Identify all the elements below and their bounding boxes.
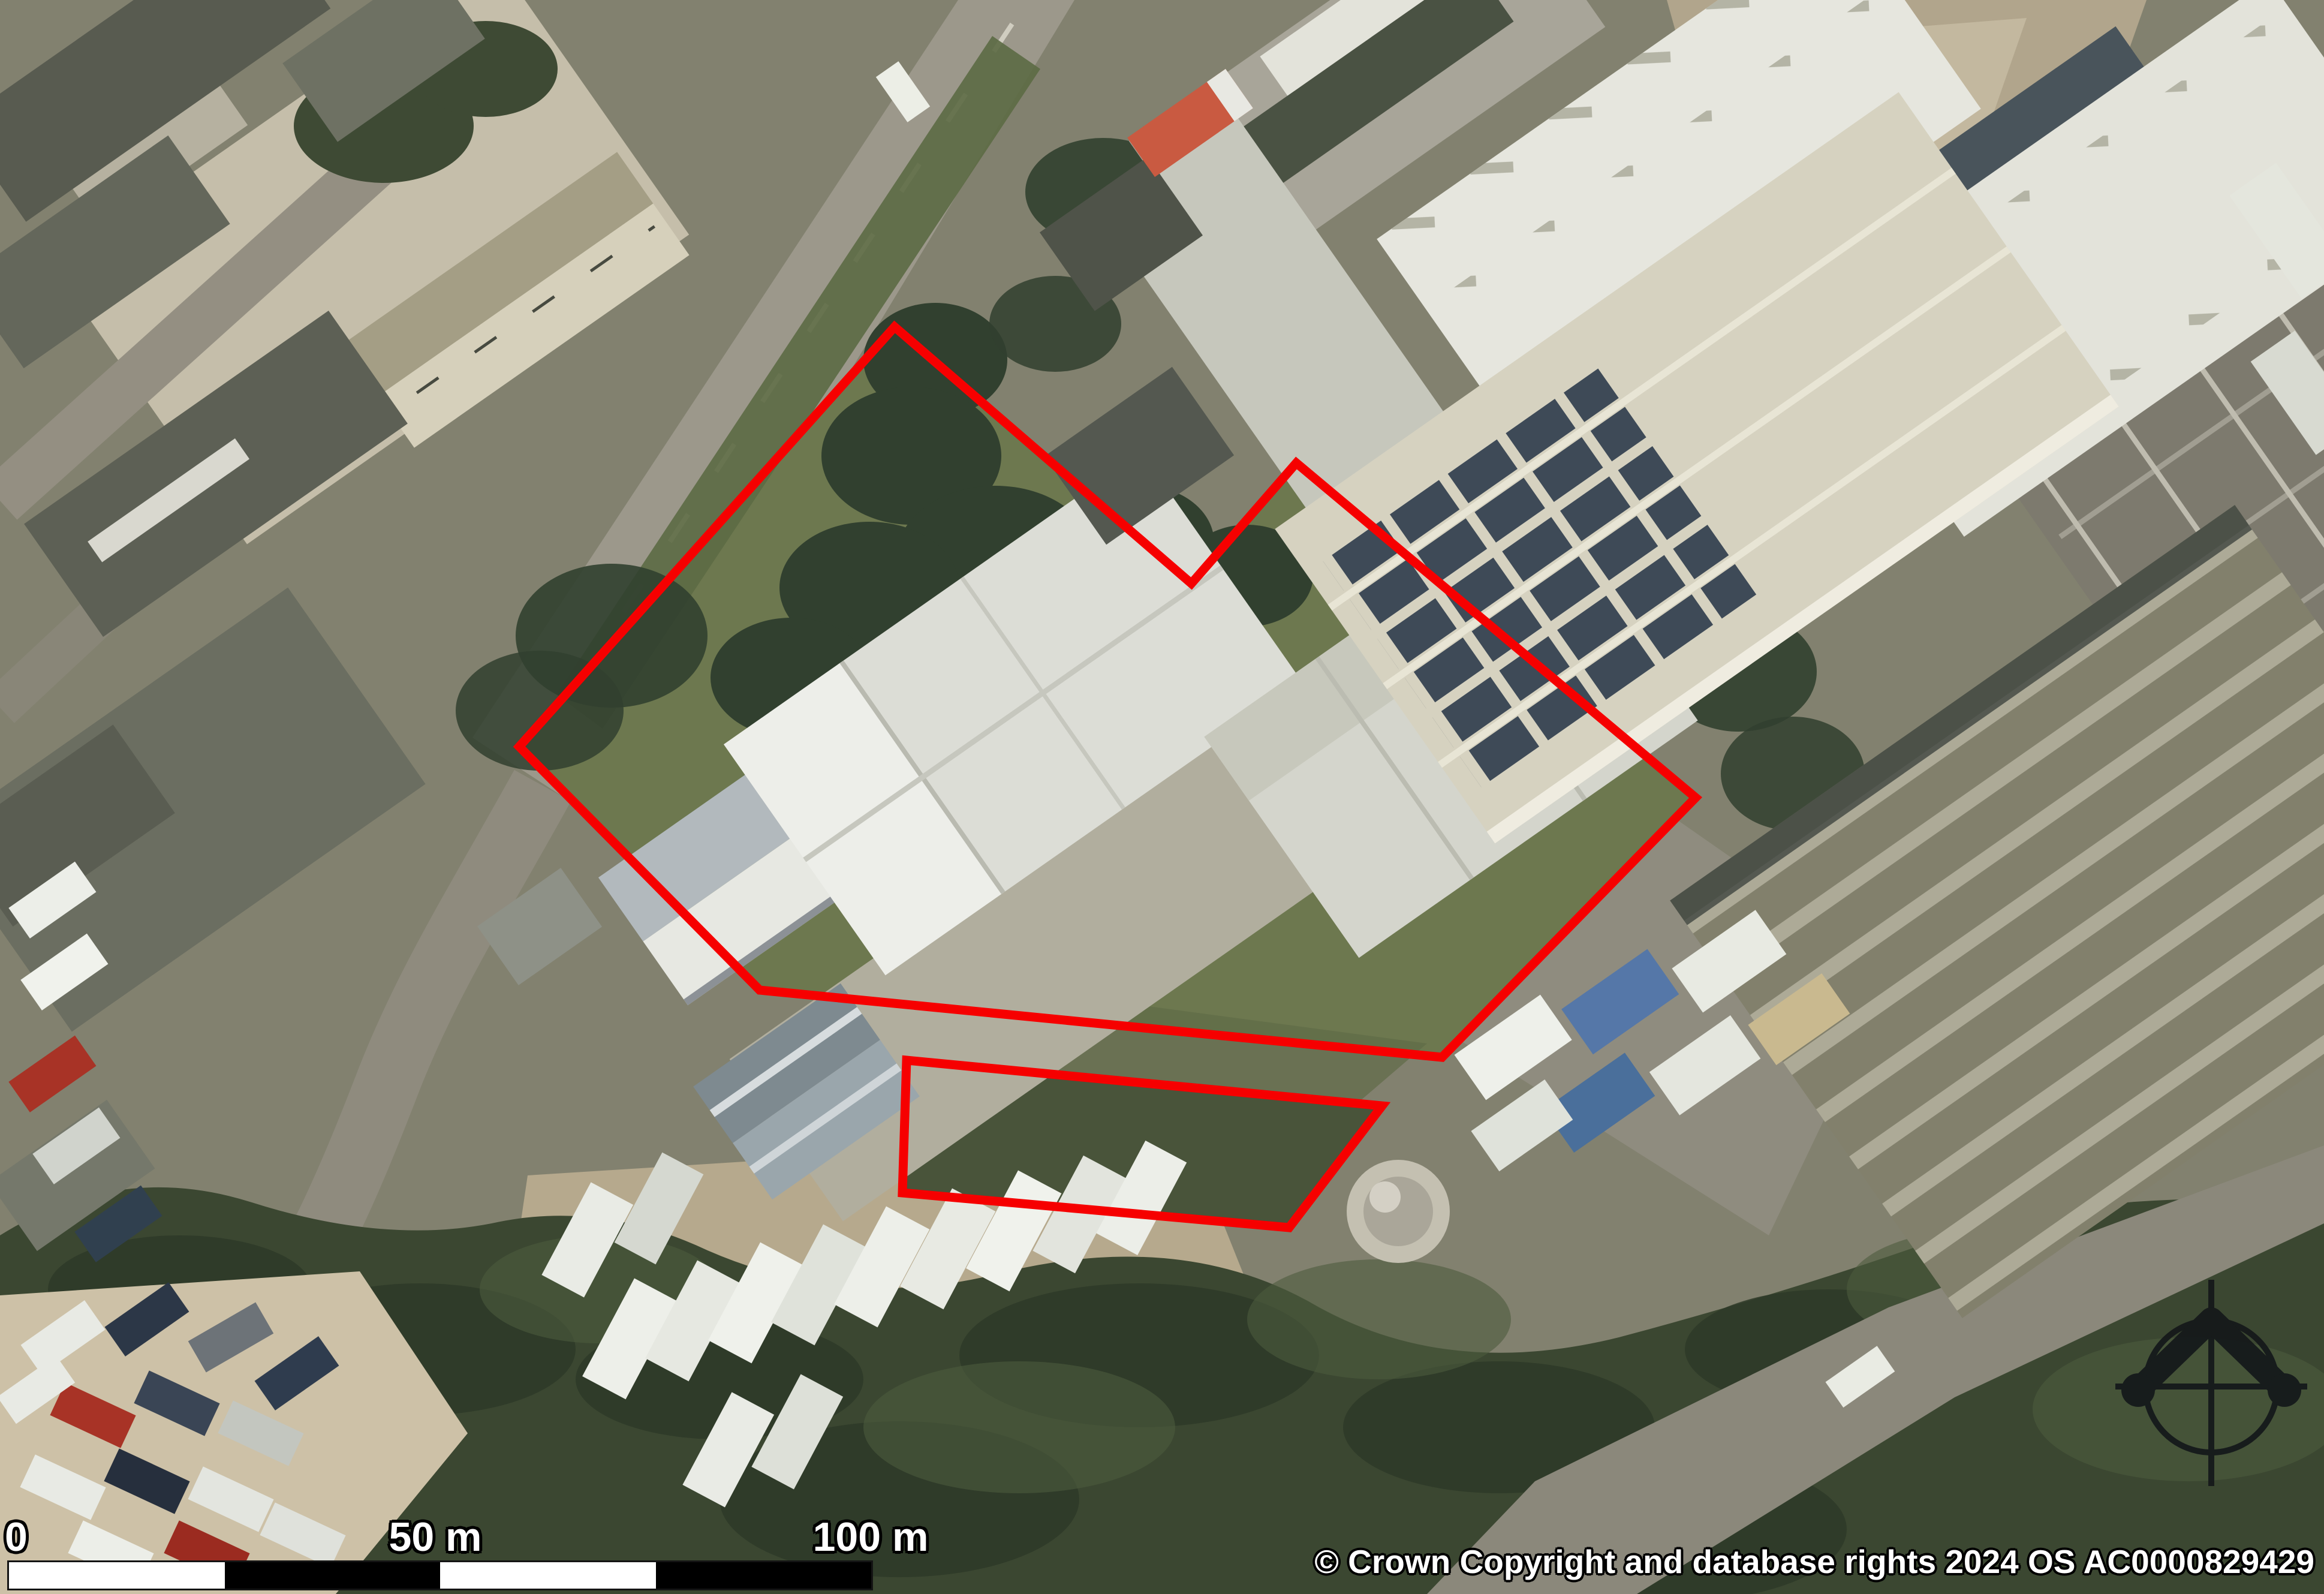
copyright-attribution: © Crown Copyright and database rights 20… [1314, 1542, 2314, 1581]
scale-label-fifty: 50 m [389, 1514, 482, 1560]
aerial-photo [0, 0, 2324, 1594]
scale-bar [7, 1560, 873, 1590]
scale-label-zero: 0 [5, 1514, 28, 1560]
scale-bar-segment [225, 1562, 441, 1589]
scale-bar-segment [656, 1562, 872, 1589]
map-canvas: 0 50 m 100 m © Crown Copyright and datab… [0, 0, 2324, 1594]
scale-label-hundred: 100 m [813, 1514, 929, 1560]
